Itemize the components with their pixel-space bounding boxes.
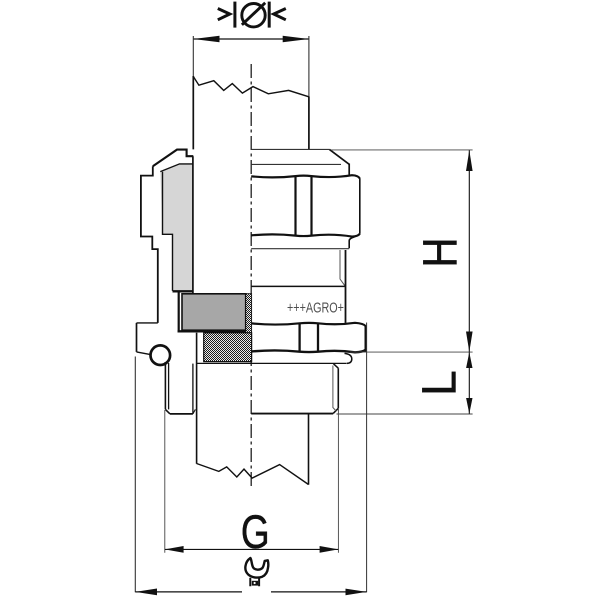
svg-text:L: L — [413, 370, 467, 396]
svg-text:H: H — [413, 237, 467, 268]
svg-text:G: G — [241, 506, 270, 560]
svg-text:+++AGRO+: +++AGRO+ — [287, 299, 344, 316]
